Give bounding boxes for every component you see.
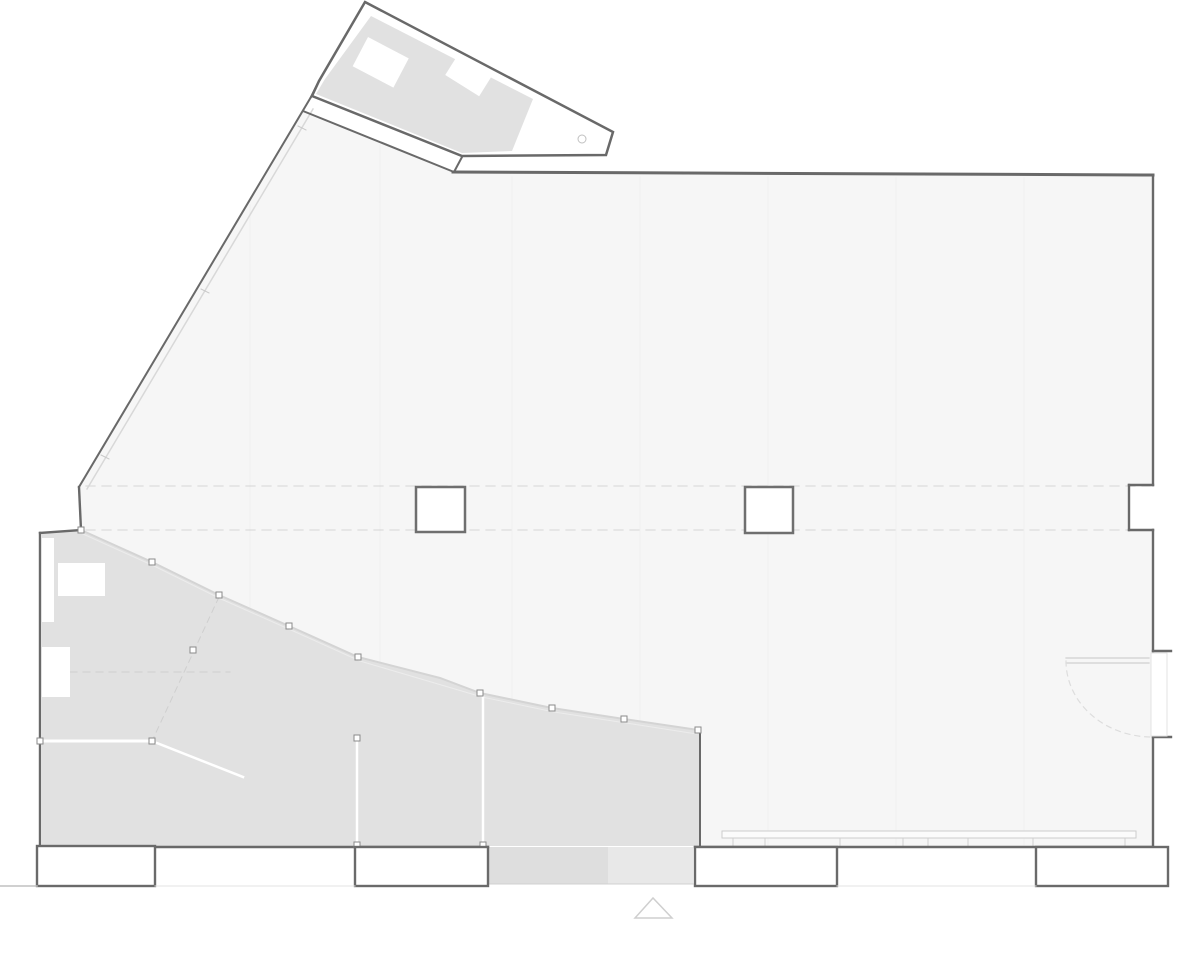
entry-ramp (488, 847, 693, 884)
entrance-marker (635, 898, 672, 918)
floor-plan (0, 0, 1200, 978)
floor-plan-svg (0, 0, 1200, 978)
